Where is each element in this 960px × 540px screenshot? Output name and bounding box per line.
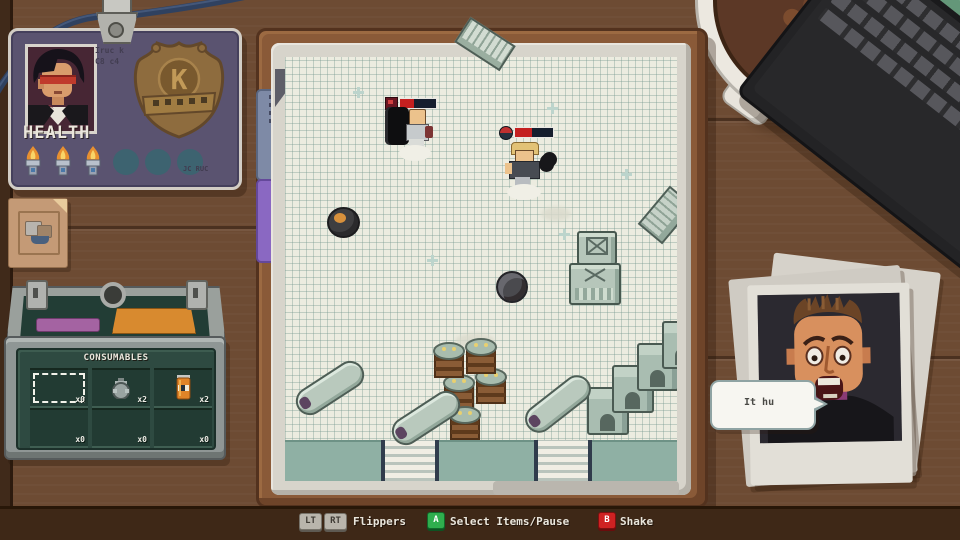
barrels	[433, 311, 523, 447]
pinball	[496, 271, 528, 303]
flipper-tip	[527, 413, 542, 429]
slot-count: x0	[199, 435, 209, 444]
lid-item-purple	[36, 318, 100, 332]
speech-bubble-tail-fill	[813, 399, 824, 409]
health-torch-icon	[81, 145, 105, 177]
badge-clip	[94, 0, 136, 50]
sparkle-mark	[547, 103, 558, 114]
box-hinge	[100, 282, 126, 308]
speech-text: It hu	[744, 397, 774, 408]
clasp-slot	[193, 288, 198, 298]
slot-count: x2	[137, 395, 147, 404]
health-label: HEALTH	[23, 123, 90, 143]
crate-x-mark	[579, 233, 615, 263]
flipper-tip	[394, 425, 409, 441]
enemy-blond-flail	[499, 126, 563, 214]
card-serial: JC RUC	[183, 165, 208, 173]
consumable-slot-5[interactable]: x0	[92, 408, 150, 448]
polaroid-stack	[733, 262, 938, 492]
clip-screw	[108, 22, 124, 38]
select-items-label: Select Items/Pause	[450, 515, 569, 528]
card-name-line2: C8 c4	[95, 56, 119, 67]
consumable-slot-2[interactable]: x2	[92, 368, 150, 408]
sketch-bowl-icon	[31, 236, 49, 244]
dust-cloud	[399, 145, 431, 161]
a-button-icon: A	[427, 512, 445, 529]
enemy2-health-bar	[514, 127, 554, 138]
sticky-note	[8, 198, 68, 268]
enemy2-health-fill	[515, 128, 532, 137]
soda-can-icon	[176, 375, 191, 401]
shake-label: Shake	[620, 515, 653, 528]
lid-item-orange	[112, 308, 196, 334]
lt-key: LT	[299, 513, 322, 530]
enemy2-arm	[505, 163, 512, 174]
consumables-box: CONSUMABLES x0 x2	[2, 280, 228, 460]
barrel-cluster	[433, 311, 523, 447]
flipper-bumper[interactable]	[519, 370, 596, 439]
gate-ladder-right	[534, 440, 592, 481]
sparkle-mark	[621, 169, 632, 180]
play-field	[285, 57, 677, 481]
sparkle-mark	[427, 255, 438, 266]
flipper-bumper[interactable]	[291, 356, 370, 421]
flipper-tip	[298, 395, 313, 411]
slot-count: x2	[199, 395, 209, 404]
grenade-icon	[111, 377, 131, 399]
box-clasp-right	[186, 280, 208, 310]
rt-key: RT	[324, 513, 347, 530]
crate-small	[577, 231, 617, 265]
enemy-bald-brawler	[385, 87, 447, 171]
dust-cloud	[507, 184, 541, 200]
tilted-grate	[638, 186, 677, 245]
control-hints-bar: LT RT Flippers A Select Items/Pause B Sh…	[0, 506, 960, 540]
badge-letter: K	[171, 63, 188, 96]
health-empty-slot	[113, 149, 139, 175]
speech-bubble: It hu	[710, 380, 816, 430]
slot-count: x0	[75, 435, 85, 444]
hedgehog-face	[334, 213, 346, 223]
enemy1-arm	[425, 126, 433, 138]
arch-hole	[625, 392, 640, 409]
flail-ball	[540, 154, 555, 169]
health-torch-icon	[51, 145, 75, 177]
portrait-frame	[25, 44, 97, 134]
arch-hole	[600, 414, 615, 431]
sparkle-mark	[353, 87, 364, 98]
clasp-slot	[33, 288, 38, 298]
hedgehog-creature	[327, 207, 360, 238]
police-badge-icon: K	[129, 35, 229, 139]
gate-ladder-left	[381, 440, 439, 481]
arch-hole	[650, 370, 665, 387]
crate-x-mark	[571, 265, 619, 287]
slot-count: x0	[137, 435, 147, 444]
id-card: Iruc k C8 c4 K HEALTH JC RUC	[8, 28, 242, 190]
board-frame	[256, 28, 708, 508]
box-body: CONSUMABLES x0 x2	[4, 336, 226, 460]
paper-bottom-edge	[493, 481, 679, 495]
crate-large	[569, 263, 621, 305]
crate-stack	[569, 231, 629, 303]
consumable-slot-4[interactable]: x0	[30, 408, 88, 448]
health-empty-slot	[145, 149, 171, 175]
consumable-slot-1[interactable]: x0	[30, 368, 88, 408]
consumable-slot-3[interactable]: x2	[154, 368, 212, 408]
consumables-title: CONSUMABLES	[18, 353, 214, 363]
consumable-slot-6[interactable]: x0	[154, 408, 212, 448]
icon-detail	[388, 100, 393, 104]
enemy2-face-icon	[499, 126, 513, 140]
slot-count: x0	[75, 395, 85, 404]
box-face: CONSUMABLES x0 x2	[16, 348, 216, 450]
arch-block	[662, 321, 677, 369]
health-torch-icon	[21, 145, 45, 177]
flippers-label: Flippers	[353, 515, 406, 528]
crate-slats	[575, 288, 613, 300]
box-clasp-left	[26, 280, 48, 310]
arch-hole	[675, 348, 677, 365]
player-portrait	[28, 47, 88, 125]
b-button-icon: B	[598, 512, 616, 529]
game-screen: Iruc k C8 c4 K HEALTH JC RUC	[0, 0, 960, 540]
